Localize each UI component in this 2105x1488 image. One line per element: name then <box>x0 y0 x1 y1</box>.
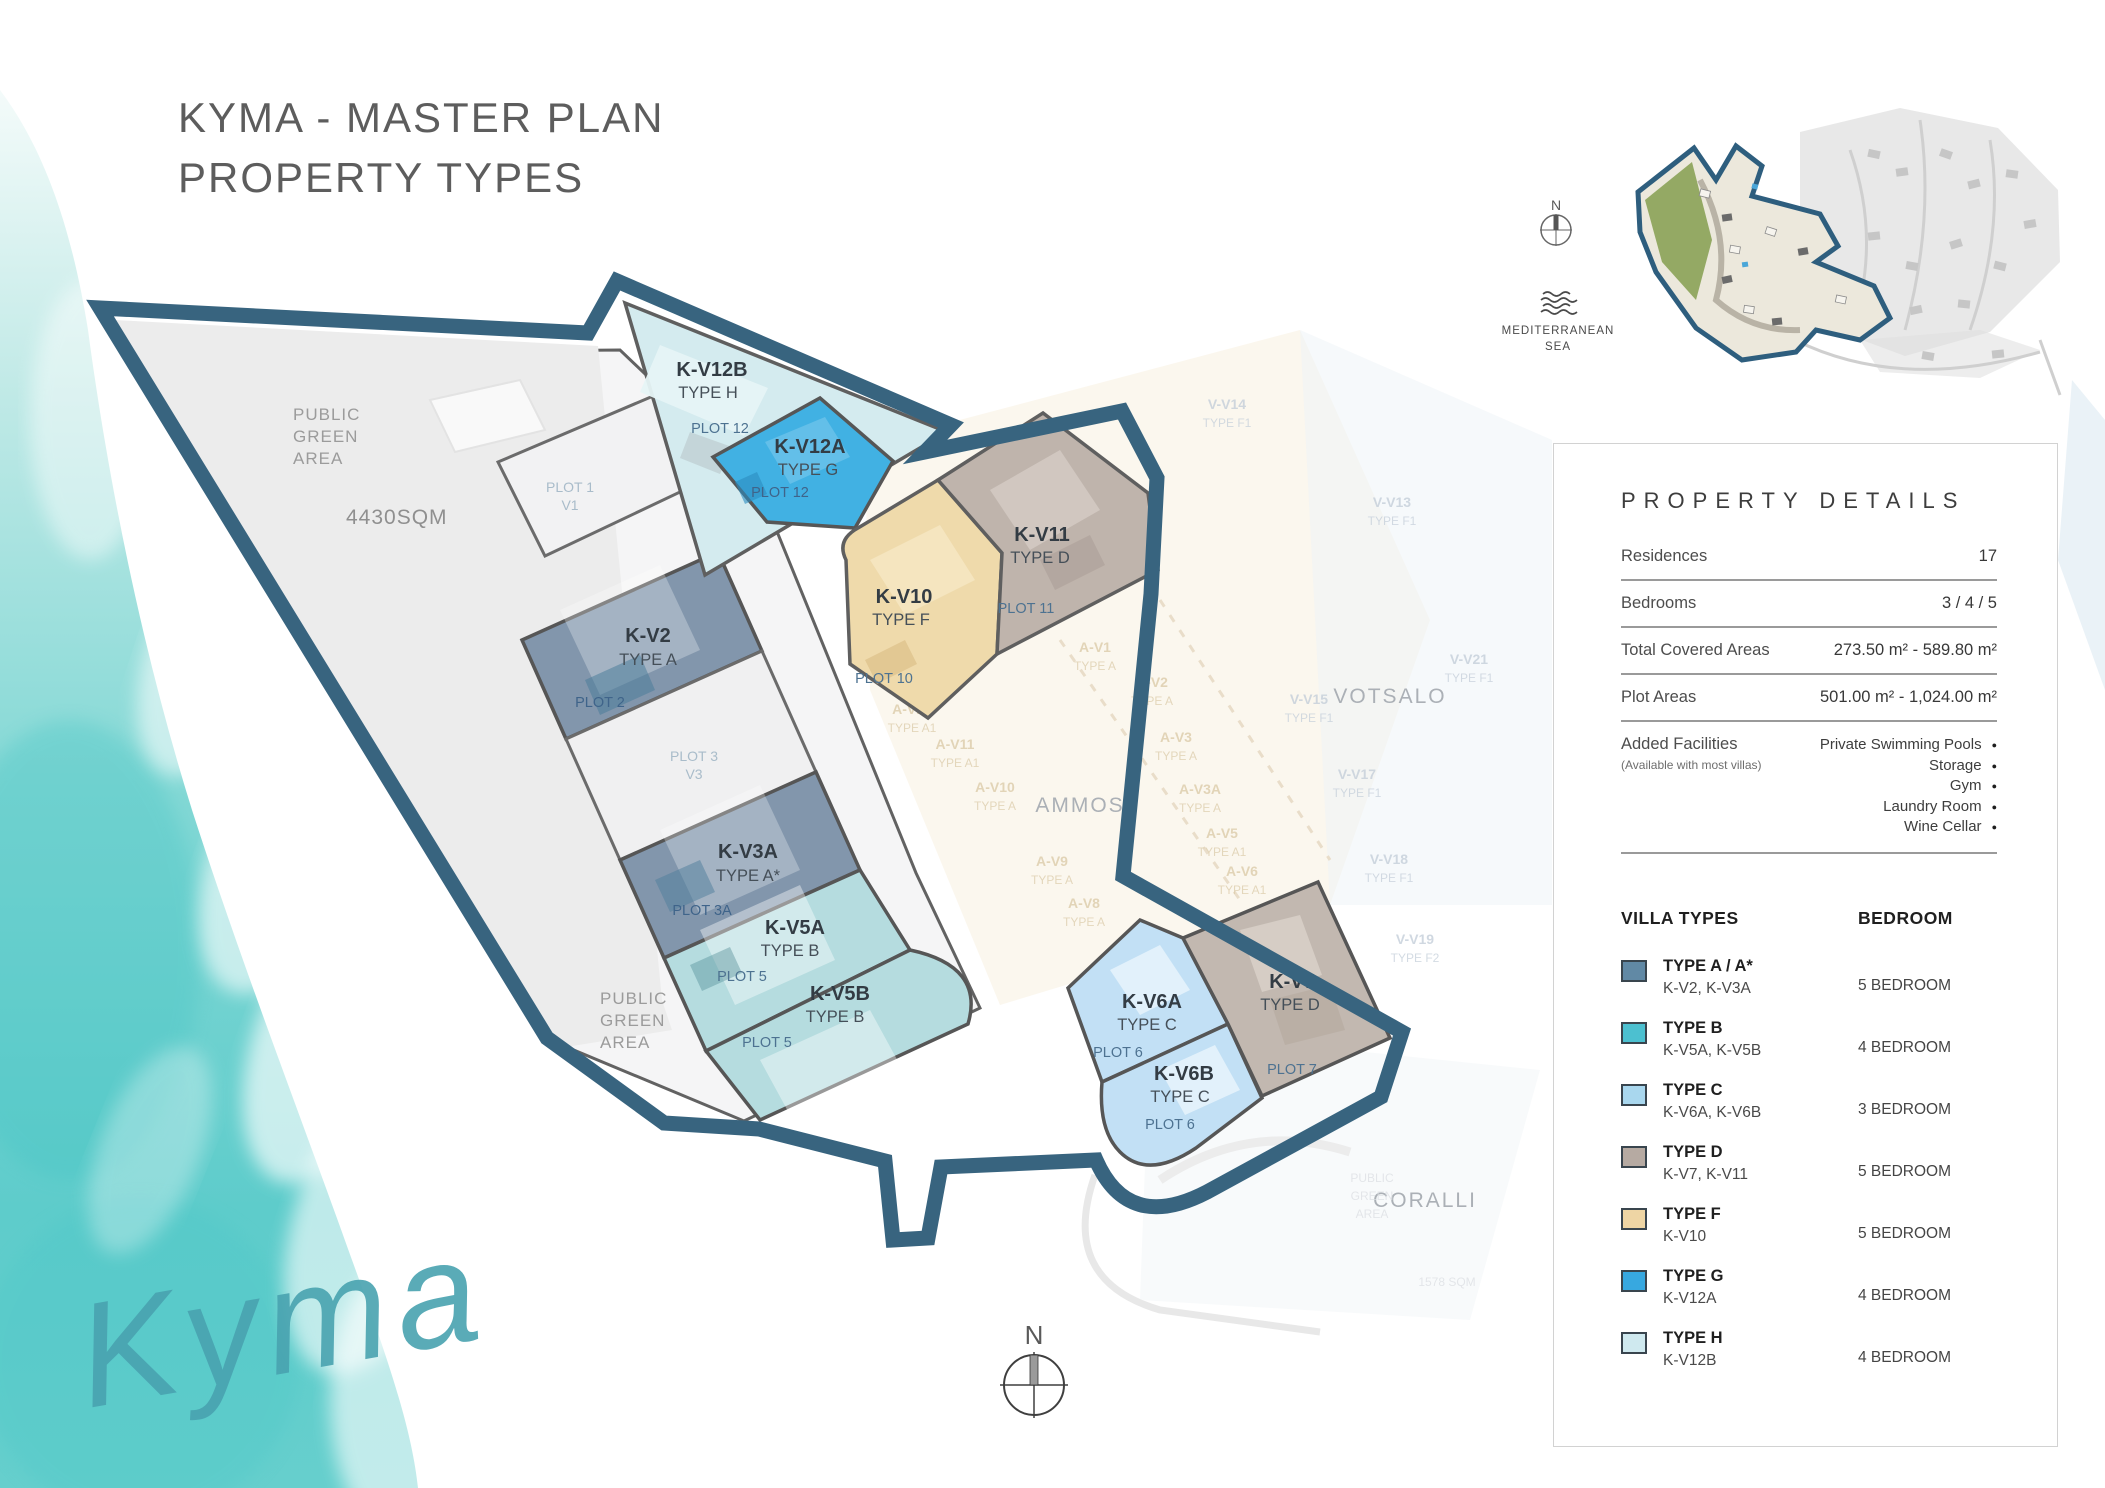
svg-text:A-V9: A-V9 <box>1036 853 1068 869</box>
svg-text:V-V18: V-V18 <box>1370 851 1408 867</box>
svg-text:AREA: AREA <box>293 449 343 468</box>
page-title: KYMA - MASTER PLAN PROPERTY TYPES <box>178 88 664 208</box>
svg-text:TYPE A1: TYPE A1 <box>1198 845 1247 859</box>
legend-row-type-b: TYPE B K-V5A, K-V5B 4 BEDROOM <box>1621 1019 1997 1060</box>
svg-text:A-V11: A-V11 <box>936 736 975 752</box>
facility-text: Laundry Room <box>1883 797 1981 818</box>
plot-type: TYPE D <box>1010 549 1070 567</box>
plot-type: TYPE B <box>806 1008 865 1026</box>
spec-value: 501.00 m² - 1,024.00 m² <box>1820 688 1997 707</box>
legend-bedrooms: 4 BEDROOM <box>1858 1287 1997 1308</box>
facility-text: Storage <box>1929 756 1982 777</box>
north-label: N <box>1025 1320 1044 1350</box>
legend-bedrooms: 4 BEDROOM <box>1858 1349 1997 1370</box>
plot-label: PLOT 7 <box>1267 1062 1317 1078</box>
faint-public-green: AREA <box>1356 1207 1389 1221</box>
legend-type: TYPE C <box>1663 1081 1858 1100</box>
legend-type: TYPE D <box>1663 1143 1858 1162</box>
compass-needle <box>1030 1355 1038 1385</box>
plot-label: PLOT 5 <box>742 1035 792 1051</box>
plot-label: V1 <box>561 497 578 513</box>
area-label-votsalo: VOTSALO <box>1333 685 1446 708</box>
legend-header-villa-types: VILLA TYPES <box>1621 908 1858 929</box>
svg-text:TYPE A1: TYPE A1 <box>931 756 980 770</box>
svg-text:TYPE F1: TYPE F1 <box>1365 871 1414 885</box>
plot-type: TYPE F <box>872 611 930 629</box>
legend-header-bedroom: BEDROOM <box>1858 908 1997 929</box>
type-h-swatch <box>1621 1332 1647 1354</box>
bullet-icon: ● <box>1992 797 1997 818</box>
plot-name: K-V5A <box>765 917 825 939</box>
facility-text: Private Swimming Pools <box>1820 735 1982 756</box>
title-line-2: PROPERTY TYPES <box>178 148 664 208</box>
facility-text: Gym <box>1950 776 1982 797</box>
svg-text:A-V8: A-V8 <box>1068 895 1100 911</box>
bullet-icon: ● <box>1992 817 1997 838</box>
svg-text:V-V15: V-V15 <box>1290 691 1328 707</box>
plot-label: PLOT 10 <box>855 671 913 687</box>
plot-label: PLOT 6 <box>1145 1117 1195 1133</box>
legend-row-type-d: TYPE D K-V7, K-V11 5 BEDROOM <box>1621 1143 1997 1184</box>
svg-text:V-V17: V-V17 <box>1338 766 1376 782</box>
facility-text: Wine Cellar <box>1904 817 1982 838</box>
plot-name: K-V11 <box>1014 524 1070 546</box>
type-c-swatch <box>1621 1084 1647 1106</box>
spec-value: 17 <box>1979 547 1997 566</box>
svg-text:PUBLIC: PUBLIC <box>600 989 667 1008</box>
facility-item: Storage● <box>1820 756 1997 777</box>
spec-value: 273.50 m² - 589.80 m² <box>1834 641 1997 660</box>
svg-text:GREEN: GREEN <box>293 427 358 446</box>
north-compass: N <box>1000 1320 1068 1418</box>
plot-name: K-V2 <box>625 625 671 647</box>
svg-text:TYPE A: TYPE A <box>1063 915 1105 929</box>
plot-name: K-V12A <box>774 436 845 458</box>
legend-type: TYPE A / A* <box>1663 957 1858 976</box>
north-label: N <box>1551 197 1561 213</box>
plot-type: TYPE G <box>778 461 839 479</box>
green-area-size: 4430SQM <box>346 506 448 529</box>
legend-type: TYPE F <box>1663 1205 1858 1224</box>
legend-type: TYPE H <box>1663 1329 1858 1348</box>
svg-text:AREA: AREA <box>600 1033 650 1052</box>
svg-text:V-V13: V-V13 <box>1373 494 1411 510</box>
svg-text:TYPE F1: TYPE F1 <box>1333 786 1382 800</box>
type-d-swatch <box>1621 1146 1647 1168</box>
legend-bedrooms: 5 BEDROOM <box>1858 1163 1997 1184</box>
facility-item: Gym● <box>1820 776 1997 797</box>
plot-label: PLOT 12 <box>691 421 749 437</box>
plot-label: PLOT 5 <box>717 969 767 985</box>
spec-label: Total Covered Areas <box>1621 641 1770 660</box>
svg-text:A-V6: A-V6 <box>1226 863 1258 879</box>
svg-text:TYPE A1: TYPE A1 <box>1218 883 1267 897</box>
legend-row-type-f: TYPE F K-V10 5 BEDROOM <box>1621 1205 1997 1246</box>
svg-text:V-V14: V-V14 <box>1208 396 1246 412</box>
legend-row-type-h: TYPE H K-V12B 4 BEDROOM <box>1621 1329 1997 1370</box>
legend-villas: K-V12B <box>1663 1352 1858 1370</box>
svg-text:A-V10: A-V10 <box>975 779 1015 795</box>
spec-row-bedrooms: Bedrooms 3 / 4 / 5 <box>1621 581 1997 628</box>
added-facilities-section: Added Facilities (Available with most vi… <box>1621 722 1997 854</box>
legend-villas: K-V2, K-V3A <box>1663 980 1858 998</box>
plot-label: PLOT 3 <box>670 748 718 764</box>
plot-name: K-V6A <box>1122 991 1182 1013</box>
plot-type: TYPE H <box>678 384 738 402</box>
villa-types-legend: TYPE A / A* K-V2, K-V3A 5 BEDROOM TYPE B… <box>1621 957 1997 1370</box>
svg-text:TYPE A1: TYPE A1 <box>888 721 937 735</box>
svg-text:TYPE A: TYPE A <box>974 799 1016 813</box>
faint-sqm-label: 1578 SQM <box>1418 1275 1475 1289</box>
plot-label: PLOT 6 <box>1093 1045 1143 1061</box>
svg-text:TYPE A: TYPE A <box>1179 801 1221 815</box>
plot-label: PLOT 3A <box>672 903 732 919</box>
plot-label: V3 <box>685 766 702 782</box>
plot-type: TYPE A* <box>716 867 781 885</box>
bullet-icon: ● <box>1992 735 1997 756</box>
svg-text:TYPE F1: TYPE F1 <box>1203 416 1252 430</box>
type-b-swatch <box>1621 1022 1647 1044</box>
plot-type: TYPE D <box>1260 996 1320 1014</box>
plot-type: TYPE A <box>619 651 677 669</box>
legend-bedrooms: 5 BEDROOM <box>1858 1225 1997 1246</box>
spec-label: Bedrooms <box>1621 594 1696 613</box>
svg-text:A-V1: A-V1 <box>1079 639 1111 655</box>
legend-villas: K-V10 <box>1663 1228 1858 1246</box>
facility-item: Laundry Room● <box>1820 797 1997 818</box>
plot-name: K-V6B <box>1154 1063 1214 1085</box>
legend-villas: K-V6A, K-V6B <box>1663 1104 1858 1122</box>
plot-type: TYPE B <box>761 942 820 960</box>
plot-type: TYPE C <box>1117 1016 1177 1034</box>
legend-row-type-c: TYPE C K-V6A, K-V6B 3 BEDROOM <box>1621 1081 1997 1122</box>
svg-text:A-V5: A-V5 <box>1206 825 1238 841</box>
legend-header: VILLA TYPES BEDROOM <box>1621 908 1997 929</box>
mini-north-compass: N <box>1540 197 1572 246</box>
legend-type: TYPE B <box>1663 1019 1858 1038</box>
svg-text:A-V3A: A-V3A <box>1179 781 1221 797</box>
svg-text:V-V19: V-V19 <box>1396 931 1434 947</box>
faint-public-green: GREEN <box>1351 1189 1394 1203</box>
svg-text:TYPE F2: TYPE F2 <box>1391 951 1440 965</box>
mediterranean-sea-label: MEDITERRANEAN <box>1502 325 1615 337</box>
svg-text:TYPE A: TYPE A <box>1155 749 1197 763</box>
svg-text:GREEN: GREEN <box>600 1011 665 1030</box>
compass-needle <box>1554 215 1559 230</box>
property-details-panel: PROPERTY DETAILS Residences 17 Bedrooms … <box>1553 443 2058 1447</box>
svg-text:TYPE F1: TYPE F1 <box>1368 514 1417 528</box>
legend-villas: K-V7, K-V11 <box>1663 1166 1858 1184</box>
spec-row-residences: Residences 17 <box>1621 534 1997 581</box>
svg-text:TYPE A: TYPE A <box>1031 873 1073 887</box>
mediterranean-sea-label: SEA <box>1545 341 1571 353</box>
spec-label: Plot Areas <box>1621 688 1696 707</box>
legend-villas: K-V5A, K-V5B <box>1663 1042 1858 1060</box>
plot-type: TYPE C <box>1150 1088 1210 1106</box>
svg-text:TYPE F1: TYPE F1 <box>1445 671 1494 685</box>
svg-text:TYPE F1: TYPE F1 <box>1285 711 1334 725</box>
sea-waves-icon <box>1541 292 1577 314</box>
plot-name: K-V5B <box>810 983 870 1005</box>
plot-label: PLOT 2 <box>575 695 625 711</box>
plot-label: PLOT 11 <box>998 601 1055 617</box>
spec-value: 3 / 4 / 5 <box>1942 594 1997 613</box>
bullet-icon: ● <box>1992 776 1997 797</box>
legend-row-type-g: TYPE G K-V12A 4 BEDROOM <box>1621 1267 1997 1308</box>
svg-text:TYPE A: TYPE A <box>1074 659 1116 673</box>
plot-label: PLOT 12 <box>751 485 809 501</box>
type-g-swatch <box>1621 1270 1647 1292</box>
plot-name: K-V3A <box>718 841 778 863</box>
facilities-label: Added Facilities <box>1621 735 1762 754</box>
faint-public-green: PUBLIC <box>1350 1171 1394 1185</box>
mini-locator-map: N MEDITERRANEAN SEA <box>1502 108 2060 395</box>
type-a-swatch <box>1621 960 1647 982</box>
plot-label: PLOT 1 <box>546 479 594 495</box>
spec-row-covered-areas: Total Covered Areas 273.50 m² - 589.80 m… <box>1621 628 1997 675</box>
legend-type: TYPE G <box>1663 1267 1858 1286</box>
legend-bedrooms: 5 BEDROOM <box>1858 977 1997 998</box>
area-label-ammos: AMMOS <box>1035 794 1124 817</box>
plot-name: K-V10 <box>876 586 933 608</box>
panel-heading: PROPERTY DETAILS <box>1621 488 1997 514</box>
master-plan-page: Kyma AMMOS VOTSALO CORALLI 1578 SQM PUBL… <box>0 0 2105 1488</box>
spec-row-plot-areas: Plot Areas 501.00 m² - 1,024.00 m² <box>1621 675 1997 722</box>
legend-bedrooms: 4 BEDROOM <box>1858 1039 1997 1060</box>
legend-bedrooms: 3 BEDROOM <box>1858 1101 1997 1122</box>
title-line-1: KYMA - MASTER PLAN <box>178 88 664 148</box>
type-f-swatch <box>1621 1208 1647 1230</box>
legend-villas: K-V12A <box>1663 1290 1858 1308</box>
facilities-note: (Available with most villas) <box>1621 758 1762 772</box>
bullet-icon: ● <box>1992 756 1997 777</box>
legend-row-type-a: TYPE A / A* K-V2, K-V3A 5 BEDROOM <box>1621 957 1997 998</box>
facility-item: Wine Cellar● <box>1820 817 1997 838</box>
spec-label: Residences <box>1621 547 1707 566</box>
facility-item: Private Swimming Pools● <box>1820 735 1997 756</box>
svg-text:PUBLIC: PUBLIC <box>293 405 360 424</box>
svg-text:V-V21: V-V21 <box>1450 651 1488 667</box>
plot-name: K-V12B <box>676 359 747 381</box>
svg-text:A-V3: A-V3 <box>1160 729 1192 745</box>
